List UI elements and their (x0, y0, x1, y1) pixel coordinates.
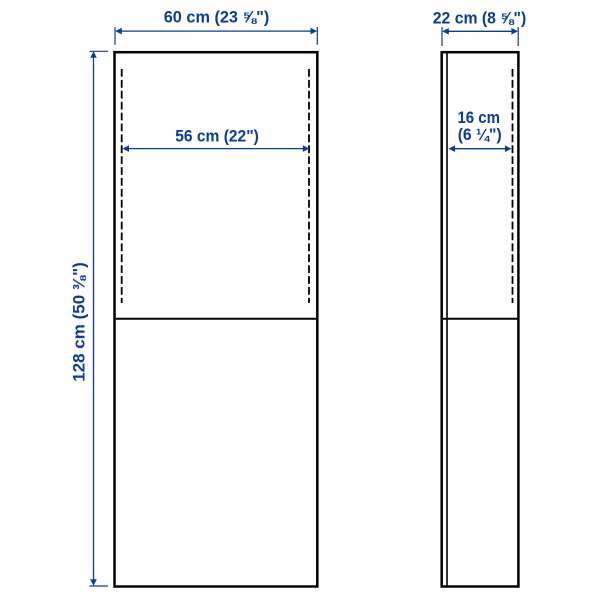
svg-text:(6 ¼"): (6 ¼") (458, 125, 502, 144)
svg-text:128 cm (50 ⅜"): 128 cm (50 ⅜") (70, 262, 89, 382)
svg-text:56 cm (22"): 56 cm (22") (175, 126, 259, 145)
svg-text:60 cm (23 ⅝"): 60 cm (23 ⅝") (164, 8, 270, 27)
svg-text:22 cm (8 ⅝"): 22 cm (8 ⅝") (433, 9, 527, 28)
